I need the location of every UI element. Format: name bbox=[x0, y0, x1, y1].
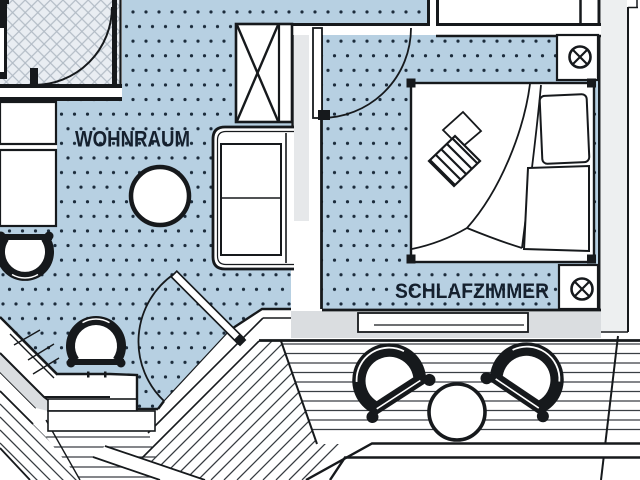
svg-text:SCHLAFZIMMER: SCHLAFZIMMER bbox=[395, 280, 549, 303]
svg-text:WOHNRAUM: WOHNRAUM bbox=[75, 127, 190, 152]
